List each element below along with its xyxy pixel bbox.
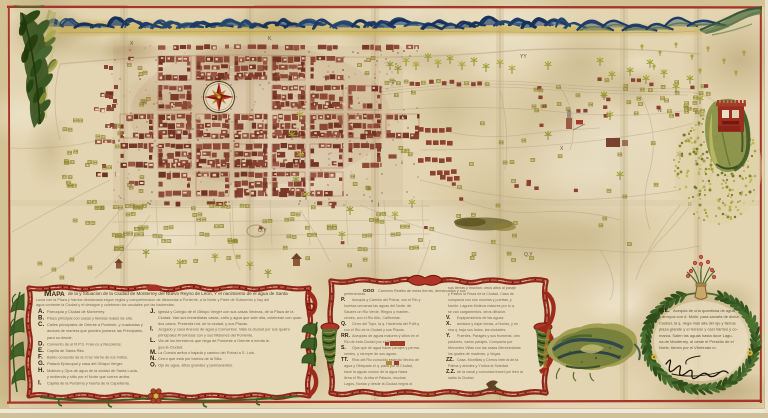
svg-text:Palma y arboles y Yndios la So: Palma y arboles y Yndios la Soledad bbox=[448, 364, 508, 368]
svg-text:marca. Salen las aguas hasta d: marca. Salen las aguas hasta doce Lagu- bbox=[659, 333, 733, 338]
svg-text:N.: N. bbox=[150, 356, 156, 362]
svg-text:huertas cercanas las aguas del: huertas cercanas las aguas del Norte, de bbox=[344, 304, 411, 308]
svg-text:Parroquia y Ciudad de Monterre: Parroquia y Ciudad de Monterrey. bbox=[47, 309, 105, 314]
svg-text:Juzgado y casa Anexos de agua: Juzgado y casa Anexos de agua y Convento… bbox=[158, 326, 290, 331]
svg-text:TT.: TT. bbox=[341, 357, 349, 363]
svg-text:Mercedes Villas con las casas: Mercedes Villas con las casas Merecedari… bbox=[448, 346, 521, 350]
svg-text:esa q. baja sus lados, las ciu: esa q. baja sus lados, las ciudades. bbox=[448, 328, 506, 332]
svg-text:Q.Y: Q.Y bbox=[524, 252, 533, 258]
svg-text:agua corriente la Ciudad y el: agua corriente la Ciudad y el desague y … bbox=[36, 303, 175, 307]
svg-text:Ciudad, la q. riega mas alla d: Ciudad, la q. riega mas alla del ojo y t… bbox=[659, 320, 736, 325]
svg-text:M.: M. bbox=[150, 350, 157, 356]
svg-text:Iglesia y Colegio de el Obispo: Iglesia y Colegio de el Obispo Verger co… bbox=[158, 309, 294, 314]
svg-text:Rios del Rio conocido estando: Rios del Rio conocido estando Vecino de bbox=[352, 358, 419, 362]
svg-text:pastores, varios parajes. Comp: pastores, varios parajes. Compania por bbox=[448, 340, 513, 344]
svg-text:Acequia de una quantiosa de ag: Acequia de una quantiosa de agua bbox=[673, 308, 736, 313]
svg-text:Ojos que de agua hacer parajes: Ojos que de agua hacer parajes y perma- bbox=[352, 346, 421, 350]
svg-text:Cerro que está por barrios de: Cerro que está por barrios de la Silla. bbox=[158, 356, 222, 361]
svg-text:plaza grande y el terreno y ca: plaza grande y el terreno y casi Varrios… bbox=[659, 327, 739, 332]
svg-text:L.: L. bbox=[150, 338, 156, 344]
svg-text:YY: YY bbox=[520, 54, 527, 60]
svg-text:Lagos, Norias y desde la Ciuda: Lagos, Norias y desde la Ciudad riegos a… bbox=[344, 382, 412, 386]
svg-text:de la y Situacion de la Ciudad: de la y Situacion de la Ciudad de Monter… bbox=[68, 291, 288, 296]
svg-text:compania con sus muchas y puer: compania con sus muchas y puertas, y bbox=[448, 298, 512, 302]
svg-text:nentes, y siempre de sus aguas: nentes, y siempre de sus aguas. bbox=[344, 352, 397, 356]
svg-text:C.: C. bbox=[38, 321, 44, 328]
svg-text:Palacio Episcopal y casa del O: Palacio Episcopal y casa del Obispo Verg… bbox=[47, 361, 123, 366]
svg-text:agua y Obispado el q. pasa por: agua y Obispado el q. pasa por la Ciudad… bbox=[344, 364, 413, 368]
svg-text:Via de los herederos que riega: Via de los herederos que riega de Ponien… bbox=[158, 338, 271, 343]
svg-text:ZZ.: ZZ. bbox=[446, 357, 454, 363]
svg-text:H.: H. bbox=[38, 367, 44, 374]
svg-text:RR.: RR. bbox=[341, 333, 350, 339]
svg-text:Q.: Q. bbox=[341, 321, 347, 327]
svg-text:J.: J. bbox=[150, 309, 155, 315]
svg-text:Ojo de agua, sitios grandes y: Ojo de agua, sitios grandes y permanente… bbox=[158, 362, 233, 367]
svg-text:anchas de manera que pueden ju: anchas de manera que pueden juntarse las… bbox=[47, 328, 143, 333]
svg-text:na de Monterrey. al oeste el P: na de Monterrey. al oeste el Presidio de… bbox=[659, 339, 734, 344]
svg-text:Capilla de Santa Rita.: Capilla de Santa Rita. bbox=[47, 348, 85, 353]
svg-text:I.: I. bbox=[150, 326, 154, 332]
svg-text:I.: I. bbox=[38, 379, 42, 386]
svg-text:S.: S. bbox=[341, 345, 346, 351]
svg-text:gua la Ciudad.: gua la Ciudad. bbox=[158, 344, 183, 349]
svg-text:Acequias de aguas maiores y si: Acequias de aguas maiores y sitios en el bbox=[352, 334, 419, 338]
svg-text:Acequia y Camino del Potosi, c: Acequia y Camino del Potosi, con el Rio … bbox=[352, 298, 421, 302]
svg-text:Casa. Montillas y Cerros Inter: Casa. Montillas y Cerros Inter.al de la bbox=[457, 358, 519, 362]
svg-text:Lucia con la Plaza y Varrios d: Lucia con la Plaza y Varrios demarcada s… bbox=[36, 298, 269, 302]
svg-text:Plaza principal con casas y ti: Plaza principal con casas y tiendas real… bbox=[47, 316, 133, 321]
svg-text:y arroyos con d. Molin. para s: y arroyos con d. Molin. para sacarla de … bbox=[659, 314, 739, 319]
svg-text:ciones, con el Rio Alto, Calif: ciones, con el Rio Alto, Californias. bbox=[344, 316, 401, 320]
svg-text:Sauzes un Rio Verde, Riegos y: Sauzes un Rio Verde, Riegos y manten- bbox=[344, 310, 410, 314]
svg-text:Capilla de la Purisima y huert: Capilla de la Purisima y huerta de la Ca… bbox=[47, 380, 130, 385]
svg-text:Y.: Y. bbox=[446, 333, 451, 339]
svg-text:pertenencias.: pertenencias. bbox=[344, 292, 366, 296]
svg-text:La Cuesta arriba o bajada y ca: La Cuesta arriba o bajada y camino del P… bbox=[158, 350, 255, 355]
svg-text:Ciudad. Van sus immediatas cas: Ciudad. Van sus immediatas casas, caño y… bbox=[158, 315, 303, 320]
svg-text:Norte, tienen por el Virreinat: Norte, tienen por el Virreinato m. bbox=[659, 345, 717, 350]
svg-text:Barrio conocido de la Cruz Var: Barrio conocido de la Cruz Varrio de los… bbox=[47, 355, 128, 360]
svg-text:Puentes, Parages y sus fronter: Puentes, Parages y sus fronteras, otro bbox=[457, 334, 520, 338]
svg-text:X.: X. bbox=[446, 321, 451, 327]
svg-text:hace la aguas comun de la agua: hace la aguas comun de la agua hasta bbox=[344, 370, 408, 374]
svg-text:con el Rio de la Ciudad y sus: con el Rio de la Ciudad y sus Plazas. bbox=[344, 328, 405, 332]
svg-text:se van cargamentos. otros difu: se van cargamentos. otros difusion. bbox=[448, 310, 506, 314]
svg-text:Molinos y Ojos de agua de la c: Molinos y Ojos de agua de la ciudad de S… bbox=[47, 368, 138, 373]
svg-text:arriados y bajar lomas, a Nori: arriados y bajar lomas, a Norias, y en bbox=[457, 322, 518, 326]
svg-text:R.L.: R.L. bbox=[659, 308, 670, 314]
svg-text:dos casos. Presenta rod. de la: dos casos. Presenta rod. de la ciudad, y… bbox=[158, 321, 248, 326]
svg-text:Equipamientos de las aguas.: Equipamientos de las aguas. bbox=[457, 316, 504, 320]
svg-text:N: N bbox=[658, 108, 662, 114]
svg-text:sus tierras y muchos; otros al: sus tierras y muchos; otros altos al par… bbox=[448, 286, 516, 290]
svg-text:los quales de maderas, y Vegas: los quales de maderas, y Vegas. bbox=[448, 352, 501, 356]
svg-text:llena el Rio. Arriba el Palaci: llena el Rio. Arriba el Palacio, muchas bbox=[344, 376, 406, 380]
svg-text:fuente. Laguna Molinos maiores: fuente. Laguna Molinos maiores por lo q. bbox=[448, 304, 515, 308]
svg-text:saldo la Ciudad.: saldo la Ciudad. bbox=[448, 376, 474, 380]
svg-text:para su desde.: para su desde. bbox=[47, 335, 73, 340]
svg-text:P.: P. bbox=[341, 297, 346, 303]
svg-text:Calles principales de Oriente: Calles principales de Oriente a Poniente… bbox=[47, 322, 143, 327]
svg-text:Z.Z.: Z.Z. bbox=[446, 369, 456, 375]
svg-text:y Pastos la Plaza de la Ciudad: y Pastos la Plaza de la Ciudad. Casa de bbox=[448, 292, 514, 296]
svg-text:Cerro del Topo, la q. Hacienda: Cerro del Topo, la q. Hacienda del P.Alf… bbox=[352, 322, 419, 326]
svg-text:O.: O. bbox=[150, 362, 157, 368]
svg-text:O.Y: O.Y bbox=[258, 228, 267, 234]
svg-text:de la canal y comunica travel: de la canal y comunica travel por leen l… bbox=[457, 370, 524, 374]
svg-text:Convento de el R.P.S. Fran.co: Convento de el R.P.S. Fran.co y Recoleto… bbox=[47, 341, 122, 346]
svg-text:y molienda y sitio por el Nort: y molienda y sitio por el Norte que corr… bbox=[47, 374, 130, 379]
svg-text:principales Provincias con y s: principales Provincias con y sus Misione… bbox=[158, 333, 253, 338]
